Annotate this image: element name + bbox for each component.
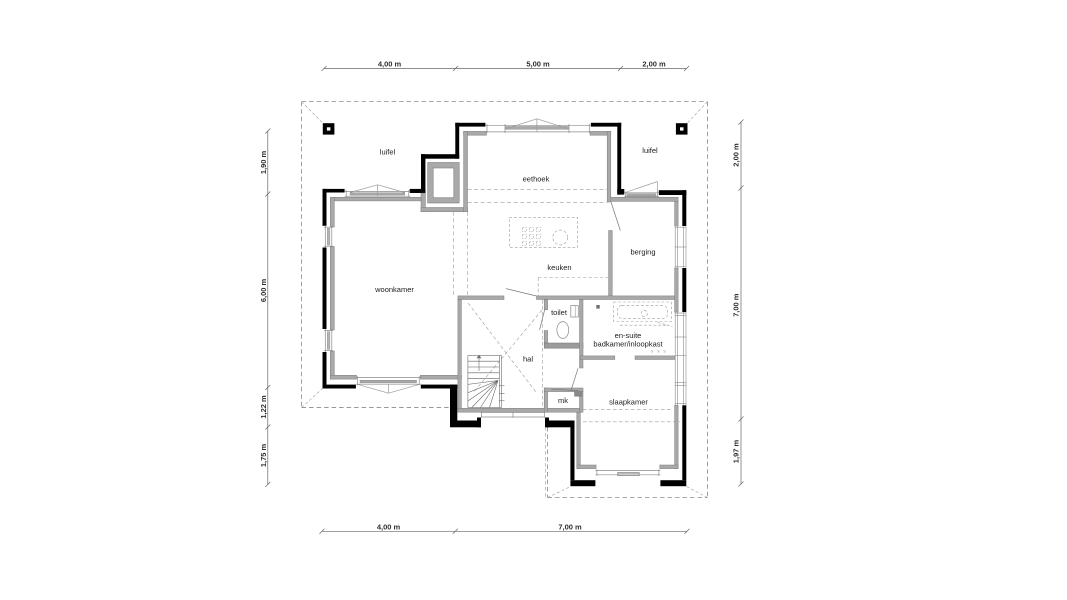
svg-text:luifel: luifel	[380, 148, 396, 157]
svg-text:1,22 m: 1,22 m	[259, 395, 268, 419]
svg-text:2,00 m: 2,00 m	[642, 59, 666, 68]
svg-text:4,00 m: 4,00 m	[378, 59, 402, 68]
svg-text:7,00 m: 7,00 m	[731, 293, 740, 317]
svg-text:1,97 m: 1,97 m	[731, 439, 740, 463]
svg-text:badkamer/inloopkast: badkamer/inloopkast	[593, 339, 663, 348]
svg-text:4,00 m: 4,00 m	[377, 523, 401, 532]
svg-text:s s s: s s s	[651, 349, 667, 354]
svg-text:eethoek: eethoek	[523, 174, 550, 183]
svg-text:toilet: toilet	[551, 308, 568, 317]
svg-text:keuken: keuken	[547, 263, 571, 272]
svg-text:2,00 m: 2,00 m	[731, 143, 740, 167]
svg-text:1,75 m: 1,75 m	[259, 443, 268, 467]
svg-text:berging: berging	[630, 248, 655, 257]
svg-text:6,00 m: 6,00 m	[259, 278, 268, 302]
svg-text:slaapkamer: slaapkamer	[609, 398, 648, 407]
svg-text:mk: mk	[558, 396, 568, 405]
svg-text:hal: hal	[523, 354, 533, 363]
svg-text:5,00 m: 5,00 m	[526, 59, 550, 68]
svg-text:1,90 m: 1,90 m	[259, 150, 268, 174]
svg-text:7,00 m: 7,00 m	[558, 523, 582, 532]
svg-text:luifel: luifel	[642, 146, 658, 155]
svg-text:woonkamer: woonkamer	[374, 285, 414, 294]
